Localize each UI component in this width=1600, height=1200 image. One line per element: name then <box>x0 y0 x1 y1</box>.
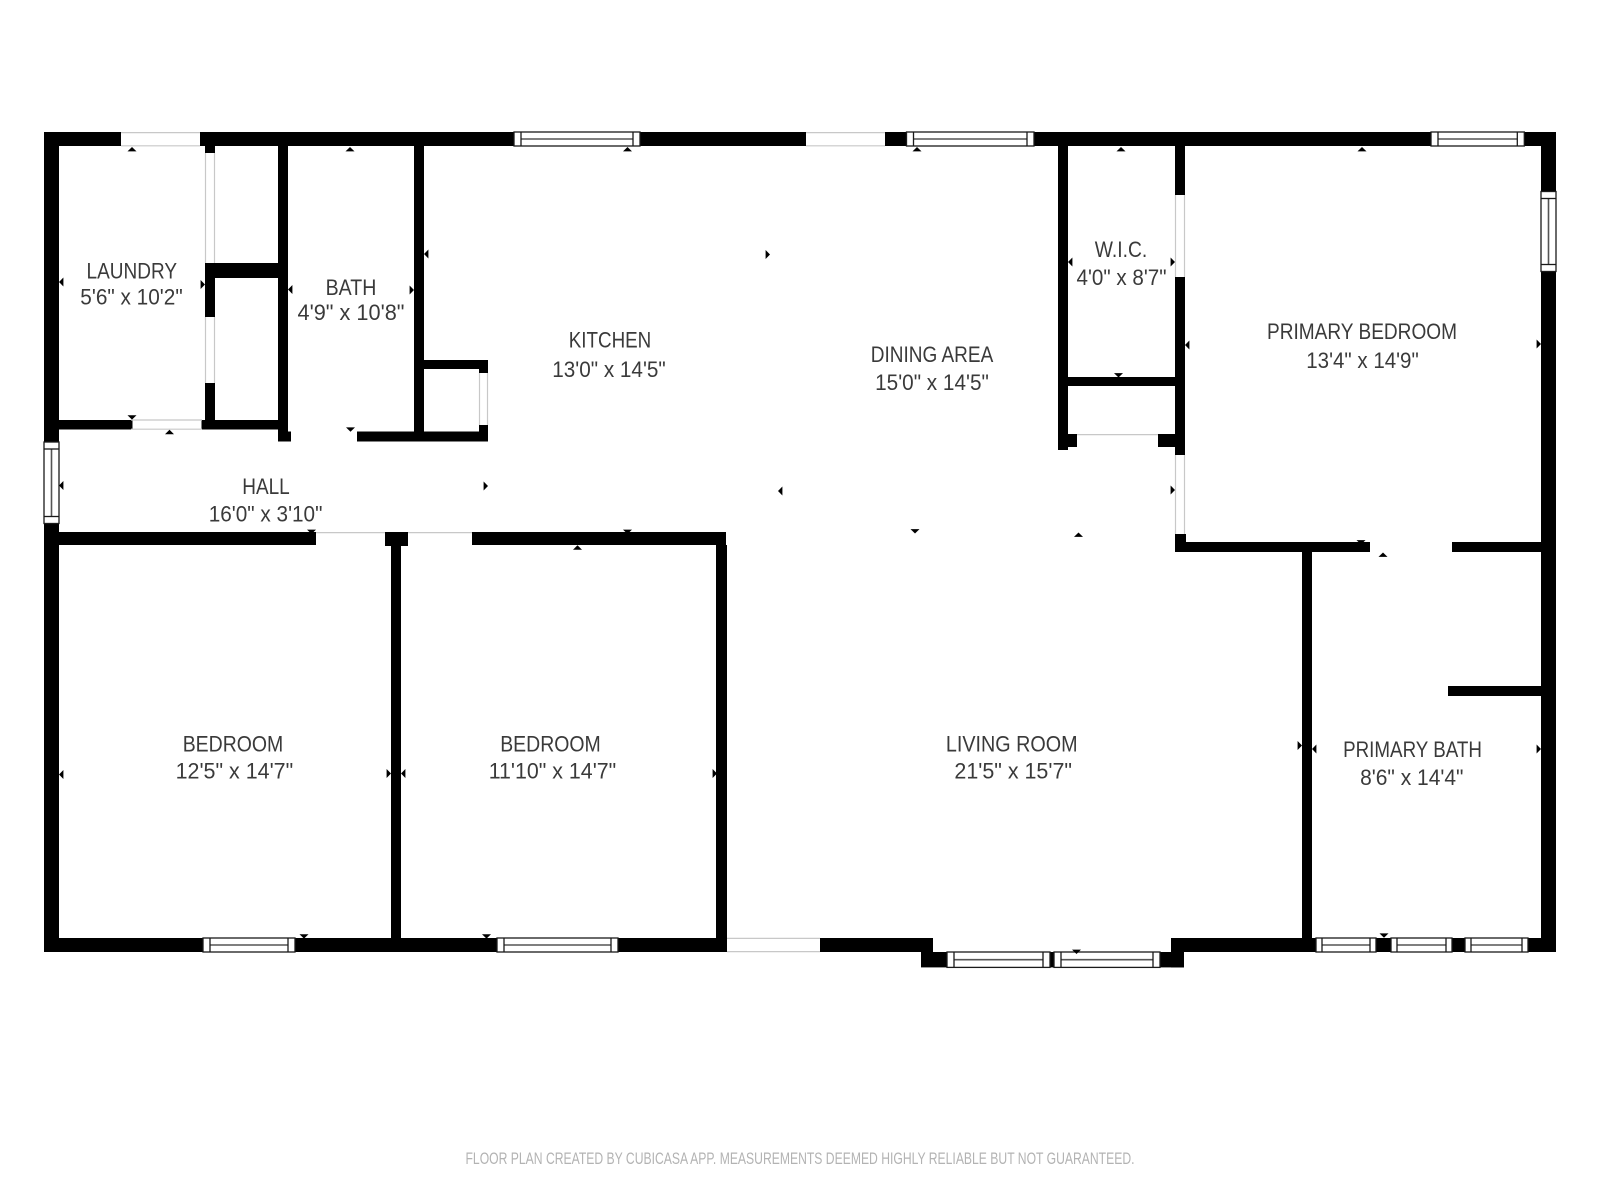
svg-text:4'9" x 10'8": 4'9" x 10'8" <box>298 300 405 325</box>
svg-text:DINING AREA: DINING AREA <box>871 342 994 367</box>
svg-text:PRIMARY BATH: PRIMARY BATH <box>1343 737 1482 762</box>
svg-text:13'4" x 14'9": 13'4" x 14'9" <box>1306 348 1419 373</box>
svg-text:8'6" x 14'4": 8'6" x 14'4" <box>1360 765 1463 790</box>
svg-text:BATH: BATH <box>326 275 377 300</box>
svg-text:HALL: HALL <box>242 474 290 499</box>
svg-text:KITCHEN: KITCHEN <box>569 328 652 353</box>
svg-text:15'0" x 14'5": 15'0" x 14'5" <box>875 370 989 395</box>
svg-text:BEDROOM: BEDROOM <box>183 732 284 757</box>
svg-text:BEDROOM: BEDROOM <box>500 732 601 757</box>
svg-text:LAUNDRY: LAUNDRY <box>87 259 178 284</box>
svg-text:FLOOR PLAN CREATED BY CUBICASA: FLOOR PLAN CREATED BY CUBICASA APP. MEAS… <box>466 1149 1135 1168</box>
svg-text:11'10" x 14'7": 11'10" x 14'7" <box>489 759 617 784</box>
svg-text:W.I.C.: W.I.C. <box>1095 237 1148 262</box>
svg-text:21'5" x 15'7": 21'5" x 15'7" <box>954 759 1072 784</box>
svg-text:4'0" x 8'7": 4'0" x 8'7" <box>1077 265 1167 290</box>
svg-text:LIVING ROOM: LIVING ROOM <box>946 732 1078 757</box>
svg-text:13'0" x 14'5": 13'0" x 14'5" <box>552 357 666 382</box>
svg-text:16'0" x 3'10": 16'0" x 3'10" <box>209 502 323 527</box>
svg-text:12'5" x 14'7": 12'5" x 14'7" <box>176 759 294 784</box>
svg-text:5'6" x 10'2": 5'6" x 10'2" <box>80 285 182 310</box>
svg-text:PRIMARY BEDROOM: PRIMARY BEDROOM <box>1267 319 1457 344</box>
